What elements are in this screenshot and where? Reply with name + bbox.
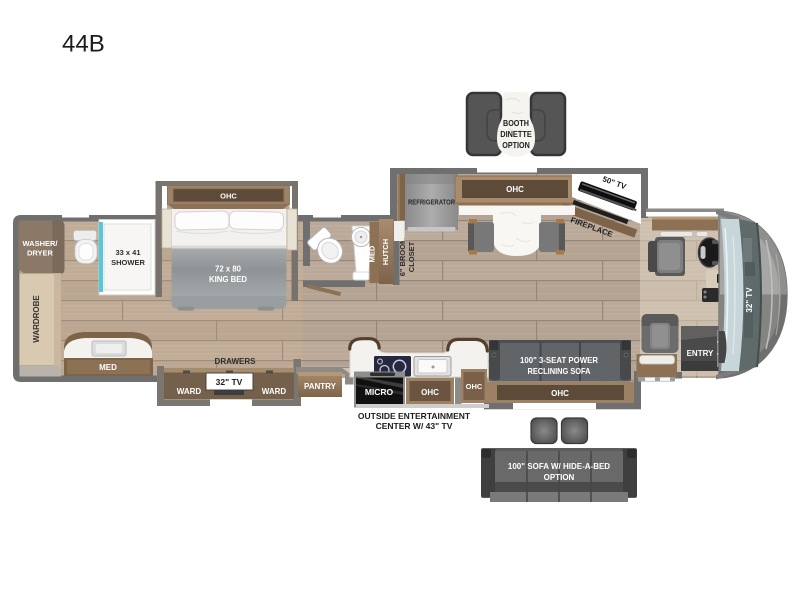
svg-text:OHC: OHC <box>506 185 524 194</box>
svg-text:WARD: WARD <box>262 387 287 396</box>
svg-text:CLOSET: CLOSET <box>407 241 416 272</box>
svg-text:44B: 44B <box>62 31 105 58</box>
svg-text:SHOWER: SHOWER <box>111 258 145 267</box>
svg-text:OPTION: OPTION <box>544 473 575 482</box>
svg-text:RECLINING SOFA: RECLINING SOFA <box>528 366 591 376</box>
svg-text:CENTER W/ 43" TV: CENTER W/ 43" TV <box>376 421 453 431</box>
svg-text:WASHER/: WASHER/ <box>22 239 58 248</box>
svg-text:OPTION: OPTION <box>502 140 530 150</box>
svg-text:72 x 80: 72 x 80 <box>215 265 242 274</box>
svg-text:PANTRY: PANTRY <box>304 382 337 391</box>
svg-text:MED: MED <box>368 245 377 262</box>
svg-text:REFRIGERATOR: REFRIGERATOR <box>408 200 455 207</box>
svg-text:OHC: OHC <box>551 389 569 398</box>
svg-text:MED: MED <box>99 363 117 372</box>
svg-text:100" SOFA W/ HIDE-A-BED: 100" SOFA W/ HIDE-A-BED <box>508 462 610 471</box>
svg-text:OUTSIDE ENTERTAINMENT: OUTSIDE ENTERTAINMENT <box>358 411 471 421</box>
svg-text:WARDROBE: WARDROBE <box>32 295 41 343</box>
svg-text:OHC: OHC <box>466 382 483 391</box>
svg-text:DRYER: DRYER <box>27 249 54 258</box>
svg-text:33 x 41: 33 x 41 <box>115 248 140 257</box>
svg-text:ENTRY: ENTRY <box>687 349 714 358</box>
svg-text:KING BED: KING BED <box>209 275 247 284</box>
svg-text:DINETTE: DINETTE <box>500 129 532 139</box>
svg-text:WARD: WARD <box>177 387 202 396</box>
svg-text:6" BROOM: 6" BROOM <box>398 238 407 277</box>
svg-text:OHC: OHC <box>421 388 439 397</box>
svg-text:BOOTH: BOOTH <box>503 118 529 128</box>
svg-text:32" TV: 32" TV <box>216 377 243 387</box>
svg-text:OHC: OHC <box>220 192 237 201</box>
svg-text:DRAWERS: DRAWERS <box>215 357 257 366</box>
svg-text:MICRO: MICRO <box>365 387 394 397</box>
svg-text:100" 3-SEAT POWER: 100" 3-SEAT POWER <box>520 355 598 365</box>
svg-text:32" TV: 32" TV <box>745 287 754 313</box>
svg-text:HUTCH: HUTCH <box>381 239 390 265</box>
